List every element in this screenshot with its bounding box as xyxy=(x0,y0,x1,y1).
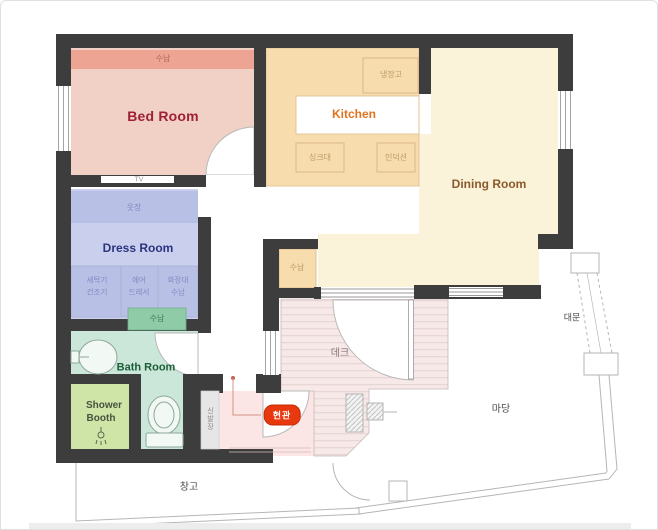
wall-top xyxy=(56,34,573,48)
tv-label: TV xyxy=(135,177,144,184)
dining-label: Dining Room xyxy=(452,178,527,190)
shed-label: 창고 xyxy=(180,483,198,493)
bedroom-window xyxy=(56,86,71,151)
washer-label-line1: 세탁기 xyxy=(87,276,108,284)
dress-room-label: Dress Room xyxy=(103,242,174,254)
washer-label-line2: 건조기 xyxy=(87,288,108,296)
entrance-badge: 현관 xyxy=(264,405,301,426)
closet-label: 옷장 xyxy=(127,204,142,212)
shed-outline xyxy=(76,463,361,527)
yard-label: 마당 xyxy=(492,405,510,415)
yard-gate-swing xyxy=(333,463,407,501)
vanity-label-line1: 화장대 xyxy=(168,276,189,284)
airdresser-label-line2: 드레서 xyxy=(129,288,150,296)
kitchen-label: Kitchen xyxy=(332,108,376,120)
hall-storage-label: 수납 xyxy=(290,264,305,272)
wall-shower-top xyxy=(56,374,129,384)
wall-bath-right-lower xyxy=(183,391,201,456)
shower-label-line1: Shower xyxy=(86,401,122,411)
wall-bottom xyxy=(56,449,273,463)
floor-plan: 수납 Bed Room TV 냉장고 Kitchen 싱크대 인덕션 Dinin… xyxy=(0,0,658,530)
wall-dress-right xyxy=(198,217,211,333)
floor-plan-drawing xyxy=(1,1,658,530)
bathroom-label: Bath Room xyxy=(117,363,176,374)
wall-right-step xyxy=(538,234,573,249)
bedroom-storage-label: 수납 xyxy=(156,55,171,63)
deck-sliding-door xyxy=(321,287,414,299)
wall-hall-deck xyxy=(263,239,279,331)
dining-window-right xyxy=(558,91,573,149)
wall-shower-toilet xyxy=(129,374,141,449)
deck-label: 데크 xyxy=(331,349,349,359)
induction-label: 인덕션 xyxy=(385,154,407,162)
wall-storage-top xyxy=(273,239,318,249)
shoe-cabinet-label: 신발장 xyxy=(207,407,214,431)
vanity-label-line2: 수납 xyxy=(171,288,185,296)
sink-label: 싱크대 xyxy=(309,154,331,162)
wall-kitchen-dining xyxy=(419,34,431,94)
dining-window-bottom xyxy=(449,287,503,297)
bedroom-label: Bed Room xyxy=(127,109,199,123)
bath-storage-label: 수납 xyxy=(150,315,165,323)
wall-deck-pier xyxy=(314,287,321,299)
page-bottom-strip xyxy=(29,523,631,530)
gate-label: 대문 xyxy=(564,314,581,323)
airdresser-label-line1: 에어 xyxy=(132,276,146,284)
wall-entrance-cap-left xyxy=(183,374,223,393)
wall-bedroom-kitchen xyxy=(254,48,266,187)
wall-entrance-cap-right xyxy=(256,374,281,393)
shower-label-line2: Booth xyxy=(87,414,116,424)
wall-storage-bottom xyxy=(273,288,318,298)
bedroom-door-opening xyxy=(206,175,254,187)
deck-door-leaf xyxy=(409,300,414,379)
hall-deck-window xyxy=(263,331,279,375)
fridge-label: 냉장고 xyxy=(380,71,402,79)
